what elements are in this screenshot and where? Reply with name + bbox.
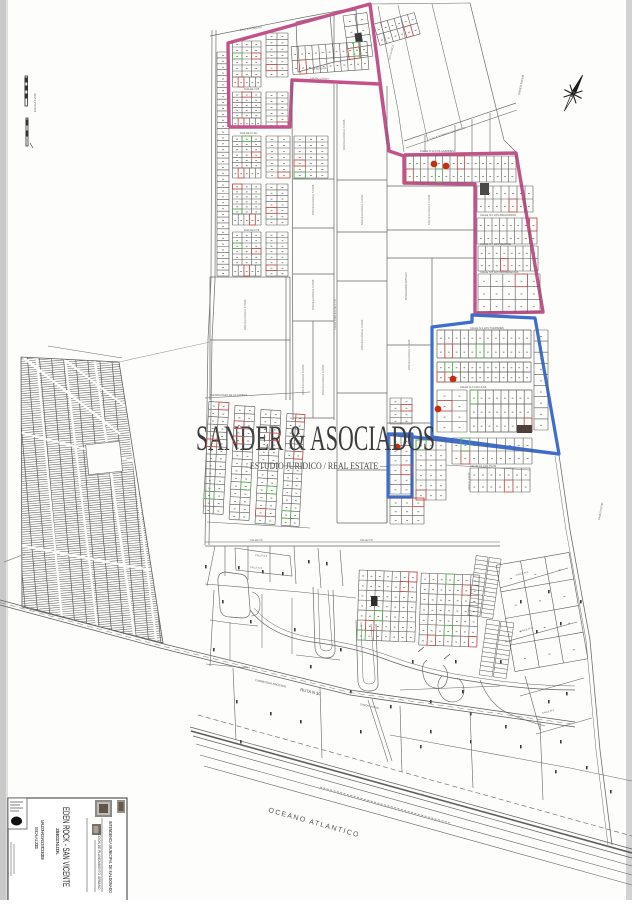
svg-text:MALDONADO, AGOSTO DE 2006: MALDONADO, AGOSTO DE 2006 [40,820,45,861]
svg-text:CALLE N 10 LOS JAZMINES: CALLE N 10 LOS JAZMINES [420,149,454,153]
svg-text:PARCELA RURAL N 6040: PARCELA RURAL N 6040 [301,364,305,395]
svg-text:EDEN ROCK - SAN VICENTE: EDEN ROCK - SAN VICENTE [61,807,71,887]
svg-text:ESCALA 1 : 2000: ESCALA 1 : 2000 [34,827,39,850]
svg-text:CALLE N 2 LAS LILAS: CALLE N 2 LAS LILAS [460,385,487,389]
svg-text:— ESTUDIO JURIDICO / REAL EST: — ESTUDIO JURIDICO / REAL ESTATE — [239,461,389,471]
svg-text:SANDER & ASOCIADOS: SANDER & ASOCIADOS [196,418,435,458]
svg-text:PARCELA RURAL N 6035: PARCELA RURAL N 6035 [243,299,247,330]
svg-text:PARCELA RURAL N 6038: PARCELA RURAL N 6038 [311,184,315,215]
svg-text:CALLE N 6: CALLE N 6 [250,539,263,542]
svg-text:2da SECCION JUDICIAL: 2da SECCION JUDICIAL [55,828,60,855]
svg-text:CALLE N 9: CALLE N 9 [244,228,259,232]
svg-text:PARCELA 6080: PARCELA 6080 [468,472,471,490]
svg-text:PARCELA RURAL N 6044: PARCELA RURAL N 6044 [427,194,431,225]
svg-text:AVENIDA PASO DE LA CADENA: AVENIDA PASO DE LA CADENA [210,394,247,397]
svg-text:CALLE N 6 LOS ARAUCANOS: CALLE N 6 LOS ARAUCANOS [480,213,516,217]
svg-text:PARCELA RURAL N 6043: PARCELA RURAL N 6043 [360,319,364,350]
svg-text:ESCALA 1:2000: ESCALA 1:2000 [33,93,37,112]
svg-text:PARCELA RURAL N 6045: PARCELA RURAL N 6045 [407,339,411,370]
svg-text:PARCELA RURAL N 6041: PARCELA RURAL N 6041 [321,364,325,395]
svg-text:CALLE N 8: CALLE N 8 [360,539,373,542]
svg-text:BOULEVARD ARTIGAS: BOULEVARD ARTIGAS [404,272,408,300]
svg-text:PARCELA RURAL N 6039: PARCELA RURAL N 6039 [311,279,315,310]
svg-text:INTENDENCIA MUNICIPAL DE MALDO: INTENDENCIA MUNICIPAL DE MALDONADO [108,821,113,893]
svg-text:CALLE N 3 LOS TULIPANES: CALLE N 3 LOS TULIPANES [470,326,504,330]
svg-text:CALLE N 10: CALLE N 10 [240,131,257,135]
svg-text:PARCELA RURAL N 6042: PARCELA RURAL N 6042 [360,194,364,225]
svg-text:CALLE N 7 LOS GEORGE: CALLE N 7 LOS GEORGE [480,242,511,246]
svg-text:CALLE PUBLICA DE 17 M: CALLE PUBLICA DE 17 M [333,299,337,330]
svg-text:CALLE N 8: CALLE N 8 [244,87,259,91]
svg-text:DIRECCION DE PLANEAMIENTO URBA: DIRECCION DE PLANEAMIENTO URBANO [97,826,101,890]
svg-text:PARCELA RURAL N 6036: PARCELA RURAL N 6036 [342,119,346,150]
svg-text:CALLE N 8 LAS MADRESELVAS: CALLE N 8 LAS MADRESELVAS [480,270,519,274]
